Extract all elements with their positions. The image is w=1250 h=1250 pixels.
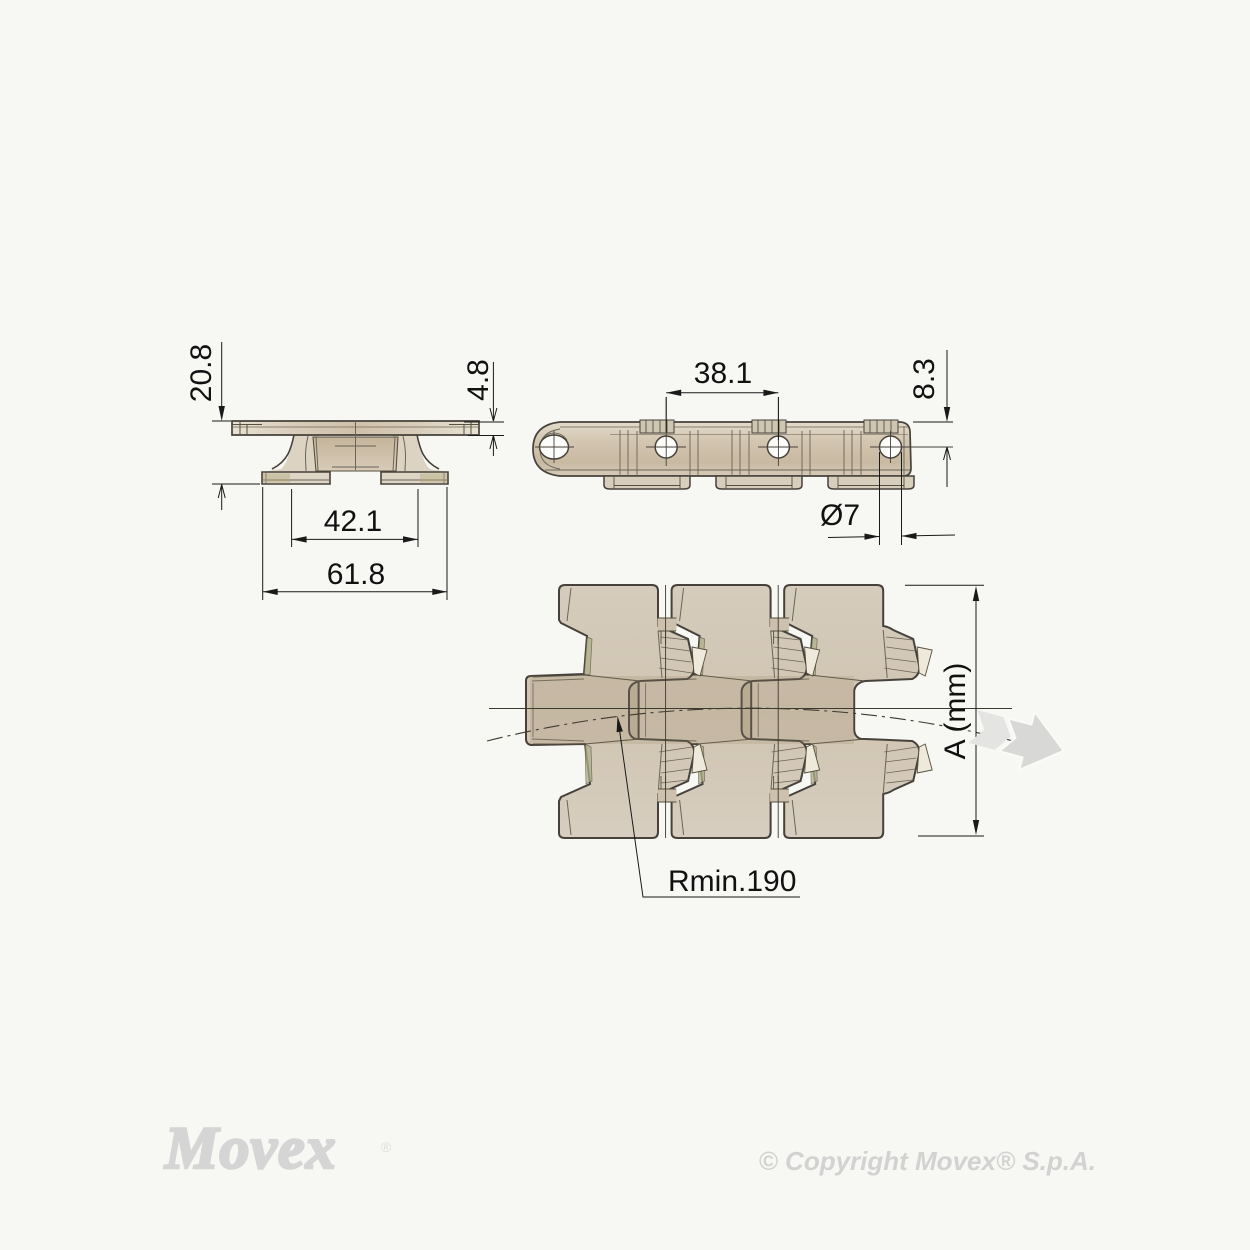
svg-text:®: ® bbox=[381, 1139, 392, 1155]
svg-text:38.1: 38.1 bbox=[694, 357, 752, 390]
svg-text:© Copyright Movex® S.p.A.: © Copyright Movex® S.p.A. bbox=[759, 1146, 1096, 1176]
svg-text:A (mm): A (mm) bbox=[939, 663, 972, 760]
svg-text:4.8: 4.8 bbox=[462, 359, 495, 401]
svg-text:8.3: 8.3 bbox=[908, 358, 941, 400]
svg-text:20.8: 20.8 bbox=[185, 344, 218, 402]
svg-text:61.8: 61.8 bbox=[327, 558, 385, 591]
svg-text:Rmin.190: Rmin.190 bbox=[668, 865, 796, 898]
svg-text:42.1: 42.1 bbox=[324, 505, 382, 538]
svg-text:Movex: Movex bbox=[164, 1115, 337, 1181]
svg-text:Ø7: Ø7 bbox=[820, 499, 860, 532]
